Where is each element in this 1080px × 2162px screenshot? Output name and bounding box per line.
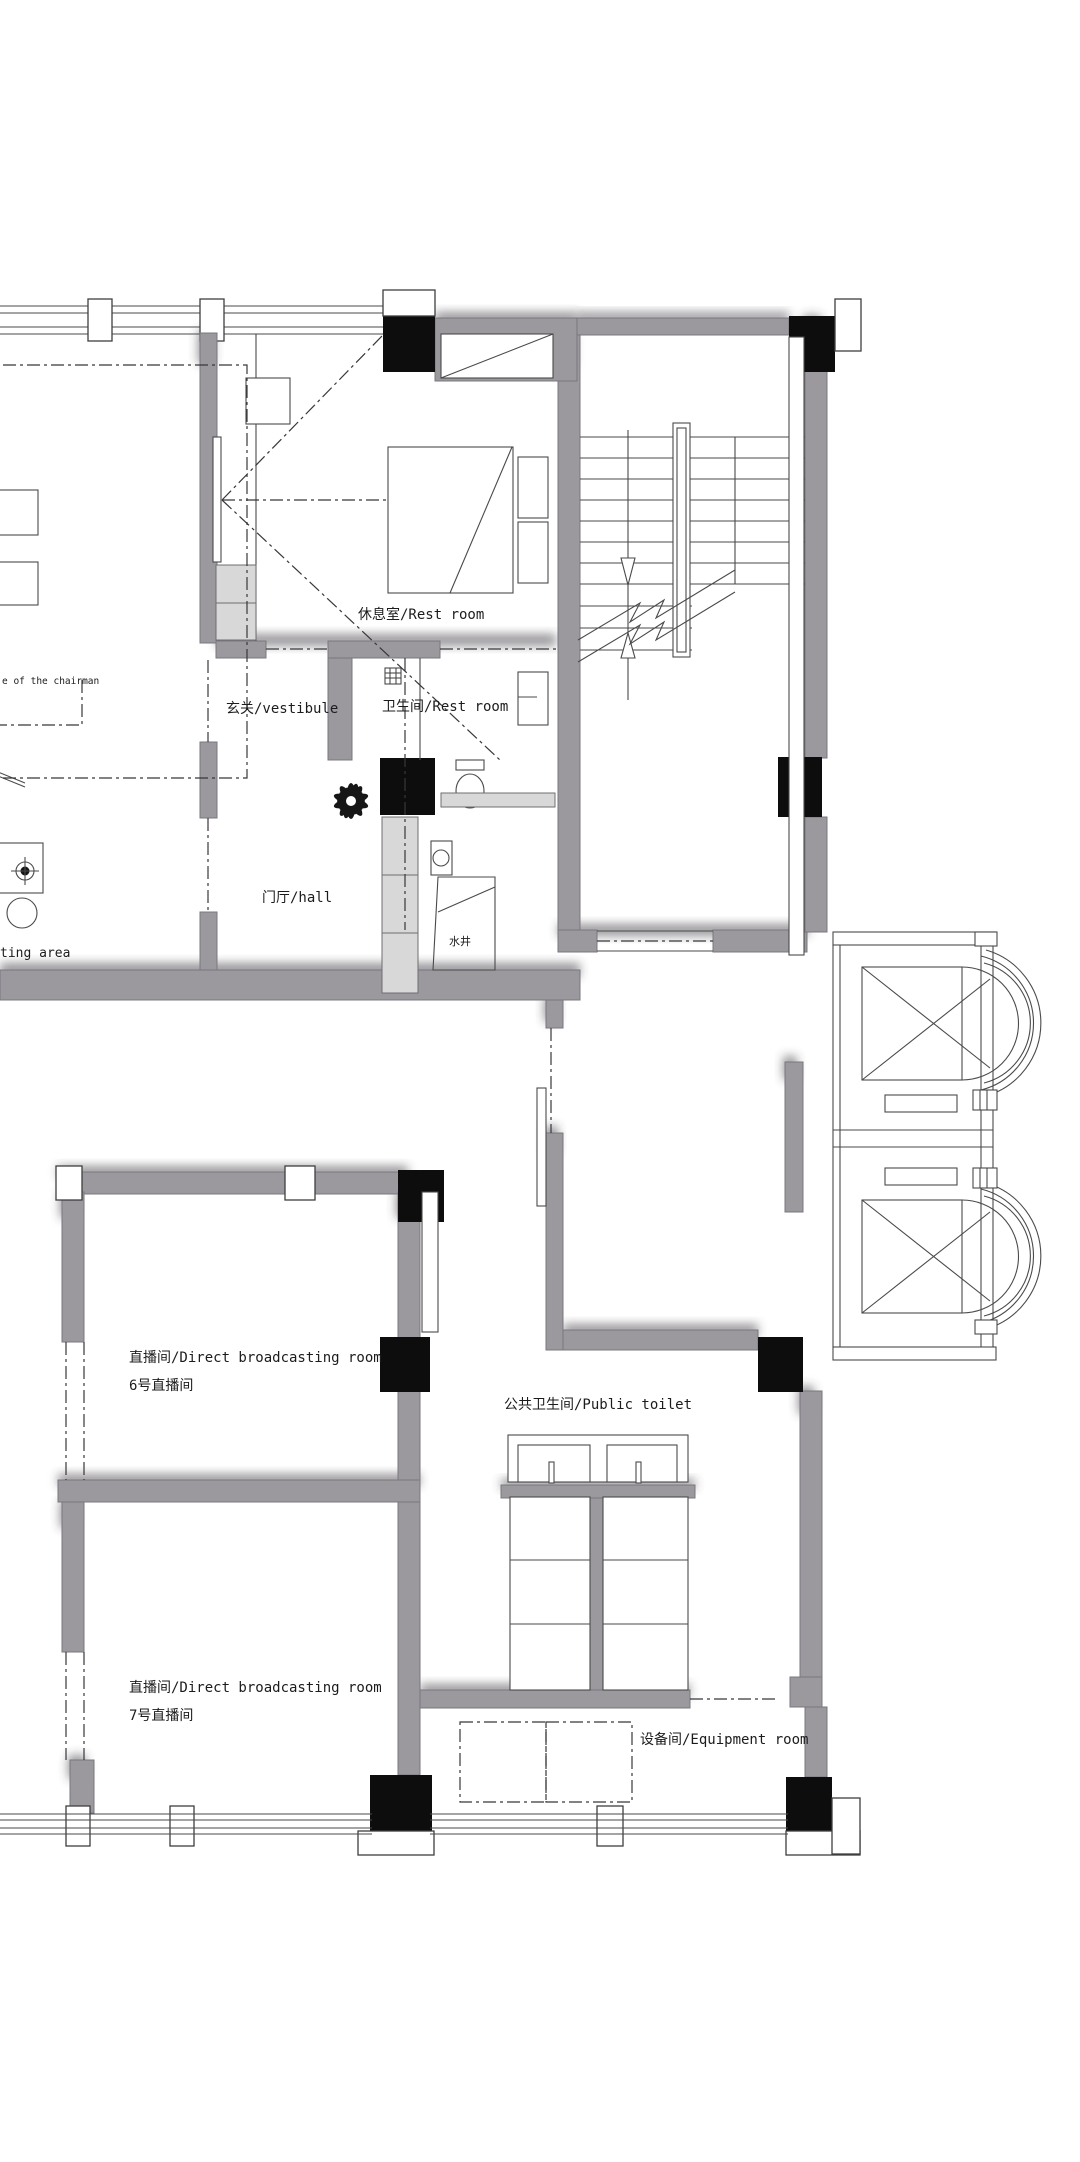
toilet-tank: [456, 760, 484, 770]
elevators: [833, 932, 1041, 1360]
label-broadcast-6-title: 直播间/Direct broadcasting room: [129, 1349, 382, 1366]
window-mullion: [88, 299, 112, 341]
pen-line: [0, 772, 25, 787]
counterweight: [885, 1168, 957, 1185]
hall-cabinet-strip: [382, 817, 418, 993]
pillow: [518, 457, 548, 518]
stair-arrow-icon: [621, 633, 635, 658]
column: [380, 758, 435, 815]
floor-drain-icon: [385, 668, 401, 684]
equipment-outline: [460, 1722, 546, 1802]
label-equipment-room: 设备间/Equipment room: [640, 1731, 808, 1748]
chair: [0, 562, 38, 605]
tap-icon: [549, 1462, 554, 1483]
basin-bowl-icon: [433, 850, 449, 866]
office-furniture: [0, 490, 43, 928]
staircase: [578, 337, 805, 955]
toilet-stall: [510, 1497, 590, 1690]
shaft-channel: [789, 337, 804, 955]
counterweight: [885, 1095, 957, 1112]
equipment-outline: [546, 1722, 632, 1802]
column: [380, 1337, 430, 1392]
column: [758, 1337, 803, 1392]
label-hall: 门厅/hall: [262, 890, 332, 906]
stool: [7, 898, 37, 928]
label-public-toilet: 公共卫生间/Public toilet: [504, 1397, 692, 1413]
chair: [0, 490, 38, 535]
curved-glass-facade: [981, 950, 1041, 1329]
tv-cabinet: [246, 378, 290, 424]
label-chairman-office: e of the chairman: [2, 676, 99, 687]
label-bathroom: 卫生间/Rest room: [382, 699, 508, 715]
column: [786, 1777, 832, 1831]
label-sitting-area: ting area: [0, 946, 70, 961]
wall-channel: [422, 1192, 438, 1332]
label-water-well: 水井: [449, 934, 471, 948]
floor-plan-canvas: e of the chairman 玄关/vestibule 休息室/Rest …: [0, 0, 1080, 2162]
column: [383, 316, 435, 372]
plant-icon: [332, 782, 369, 819]
label-broadcast-6-sub: 6号直播间: [129, 1377, 193, 1394]
shower-fixture: [518, 672, 548, 725]
door-leaf: [537, 1088, 546, 1206]
elevator-car-2: [862, 1200, 1019, 1313]
cabinet: [216, 565, 256, 603]
label-broadcast-7-sub: 7号直播间: [129, 1707, 193, 1724]
wall-panel: [213, 437, 221, 562]
sink-basin: [607, 1445, 677, 1482]
stair-break-line: [578, 570, 735, 640]
label-vestibule: 玄关/vestibule: [226, 700, 338, 717]
bed: [388, 447, 513, 593]
toilet-stall: [603, 1497, 688, 1690]
elevator-car-1: [862, 967, 1019, 1080]
pillow: [518, 522, 548, 583]
tap-icon: [636, 1462, 641, 1483]
column: [370, 1775, 432, 1831]
vanity-counter: [441, 793, 555, 807]
cabinet: [216, 603, 256, 640]
table: [0, 843, 43, 893]
top-window-band: [0, 299, 385, 341]
label-rest-room: 休息室/Rest room: [358, 606, 484, 623]
label-broadcast-7-title: 直播间/Direct broadcasting room: [129, 1679, 382, 1696]
stair-arrow-icon: [621, 558, 635, 585]
